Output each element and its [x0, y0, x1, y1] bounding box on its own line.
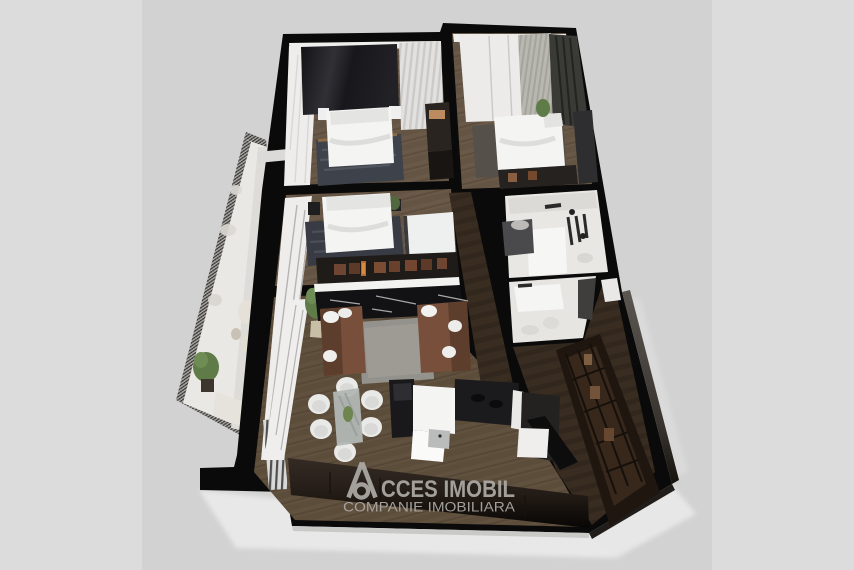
svg-text:COMPANIE IMOBILIARA: COMPANIE IMOBILIARA — [343, 500, 515, 515]
